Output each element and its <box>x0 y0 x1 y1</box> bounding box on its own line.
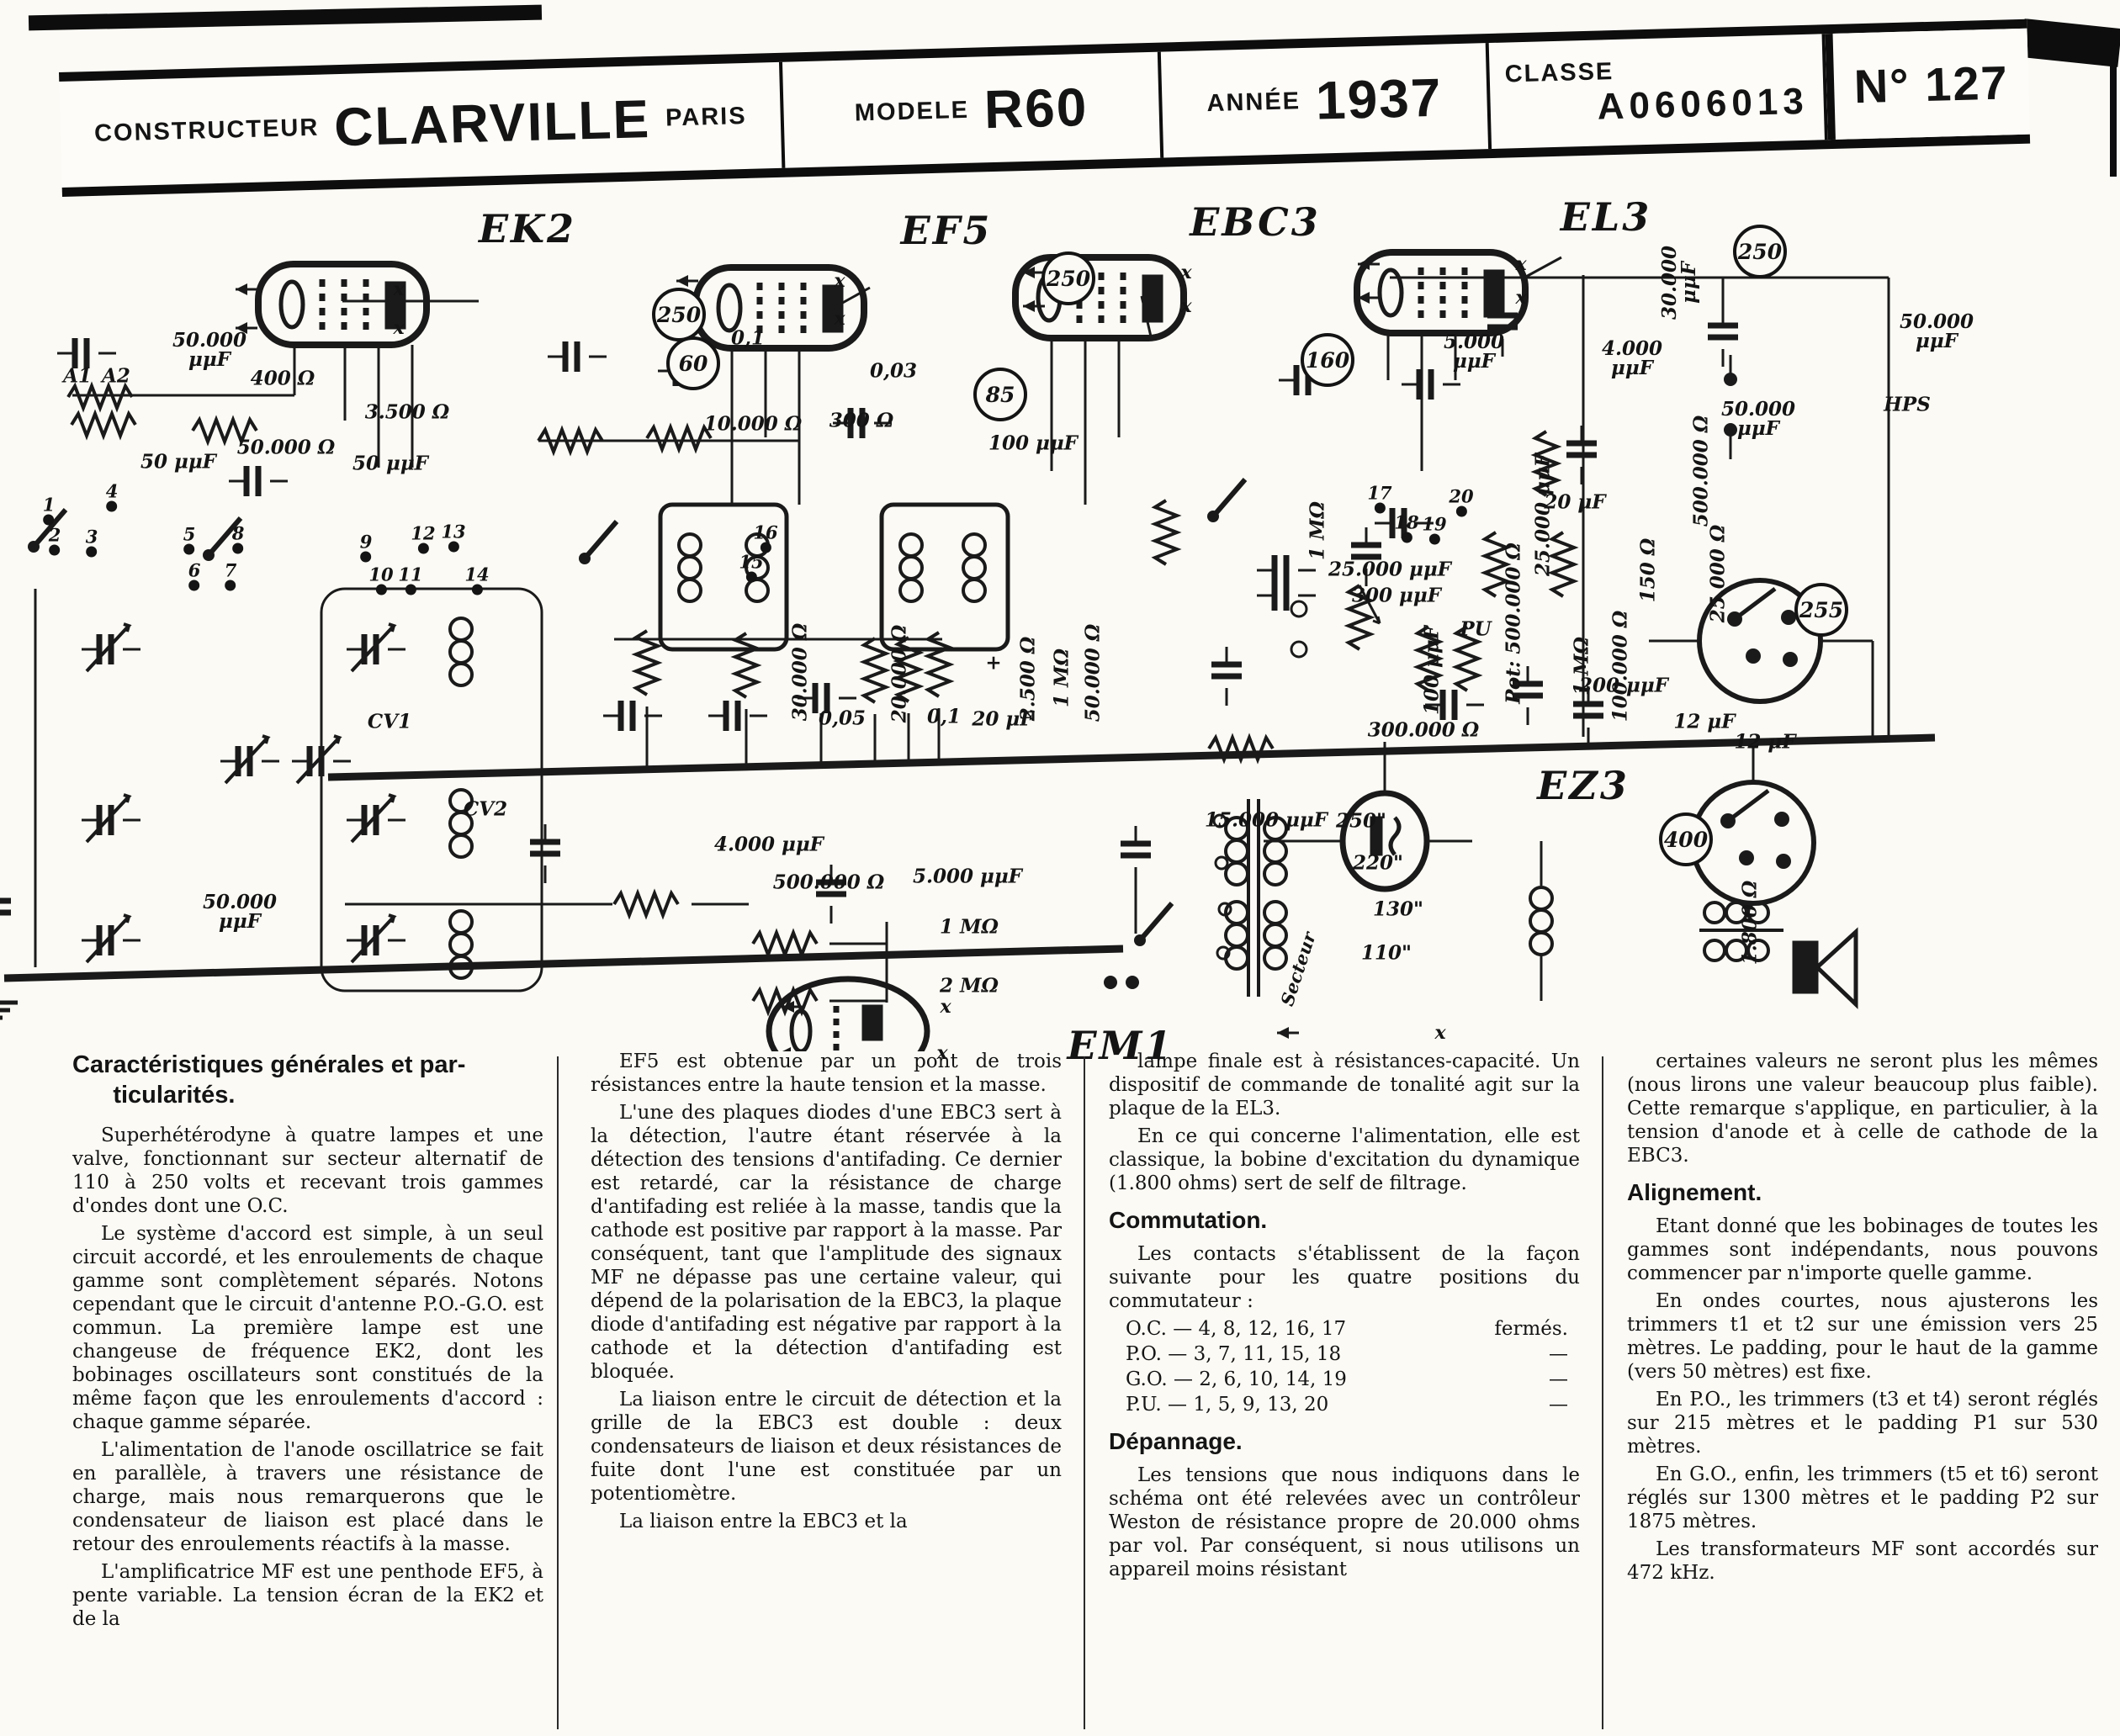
schematic-label: 300 Ω <box>829 411 894 431</box>
schematic-label: 400 Ω <box>251 369 315 389</box>
voltage-circle: 160 <box>1301 333 1354 387</box>
commutation-row-contacts: G.O. — 2, 6, 10, 14, 19 <box>1126 1368 1347 1391</box>
column-divider-2 <box>1084 1056 1085 1729</box>
header-cell-numero: N° 127 <box>1826 29 2030 140</box>
schematic-label: 3.500 Ω <box>365 403 450 422</box>
schematic-label: x <box>834 272 845 290</box>
schematic-label: 15.000 μμF <box>1205 811 1328 830</box>
schematic-label: 50.000 μμF <box>1900 312 1974 351</box>
header-strip: CONSTRUCTEUR CLARVILLE PARIS MODELE R60 … <box>59 19 2030 197</box>
schematic-label: 1 MΩ <box>1308 501 1328 560</box>
switch-contact-13: 13 <box>441 521 465 542</box>
schematic-label: 10.000 Ω <box>704 415 803 434</box>
circuit-schematic: EK2EF5EBC3EL3EZ3EM1250602508516025025540… <box>0 177 2120 1051</box>
commutation-row: P.U. — 1, 5, 9, 13, 20— <box>1109 1393 1580 1416</box>
service-sheet-page: CONSTRUCTEUR CLARVILLE PARIS MODELE R60 … <box>0 0 2120 1736</box>
modele-label: MODELE <box>854 96 969 127</box>
header-cell-constructeur: CONSTRUCTEUR CLARVILLE PARIS <box>59 62 785 188</box>
schematic-label: x <box>834 310 845 328</box>
constructeur-suffix: PARIS <box>665 102 747 132</box>
switch-contact-3: 3 <box>86 527 98 548</box>
switch-contact-19: 19 <box>1422 514 1446 535</box>
schematic-label: x <box>393 280 404 299</box>
schematic-label: 300 μμF <box>1352 586 1441 606</box>
schematic-label: x <box>1180 297 1191 315</box>
annee-label: ANNÉE <box>1206 87 1301 118</box>
switch-contact-14: 14 <box>464 564 489 585</box>
article-paragraph: certaines valeurs ne seront plus les mêm… <box>1627 1050 2098 1167</box>
schematic-label: 130" <box>1373 900 1423 919</box>
article-paragraph: Le système d'accord est simple, à un seu… <box>72 1222 543 1434</box>
switch-contact-11: 11 <box>398 564 422 585</box>
schematic-label: 50 μμF <box>140 453 216 472</box>
schematic-label: CV1 <box>368 712 411 732</box>
voltage-circle: 250 <box>652 288 706 341</box>
constructeur-value: CLARVILLE <box>333 87 651 158</box>
commutation-row: P.O. — 3, 7, 11, 15, 18— <box>1109 1342 1580 1366</box>
schematic-label: A1 <box>63 367 92 386</box>
schematic-label: 100.000 Ω <box>1611 611 1630 722</box>
schematic-label: 1 MΩ <box>940 918 999 937</box>
schematic-label: + <box>985 654 1001 673</box>
schematic-label: 12 μF <box>1673 712 1735 732</box>
annee-value: 1937 <box>1315 66 1443 132</box>
switch-contact-9: 9 <box>360 532 373 553</box>
voltage-circle: 85 <box>973 368 1027 421</box>
schematic-label: CV2 <box>464 800 507 819</box>
switch-contact-5: 5 <box>183 524 196 545</box>
schematic-label: x <box>1180 263 1191 282</box>
article-paragraph: En G.O., enfin, les trimmers (t5 et t6) … <box>1627 1463 2098 1533</box>
switch-contact-1: 1 <box>43 495 56 516</box>
voltage-circle: 60 <box>666 336 720 390</box>
article-subheading: Dépannage. <box>1109 1428 1580 1455</box>
schematic-label: 4.000 μμF <box>714 835 824 855</box>
tube-label-ek2: EK2 <box>479 206 576 251</box>
voltage-circle: 400 <box>1659 812 1713 866</box>
schematic-label: 5.000 μμF <box>1444 332 1504 371</box>
schematic-label: 50.000 Ω <box>1084 624 1103 722</box>
schematic-label: 0,1 <box>731 329 765 348</box>
article-paragraph: L'amplificatrice MF est une penthode EF5… <box>72 1560 543 1631</box>
header-cell-modele: MODELE R60 <box>782 52 1163 168</box>
schematic-label: 25.000 Ω <box>1709 525 1728 623</box>
schematic-label: 0,05 <box>819 709 866 728</box>
switch-contact-10: 10 <box>368 564 393 585</box>
article-column-4: certaines valeurs ne seront plus les mêm… <box>1627 1050 2098 1733</box>
schematic-label: 0,03 <box>870 362 917 381</box>
switch-contact-6: 6 <box>188 560 201 581</box>
commutation-row-contacts: O.C. — 4, 8, 12, 16, 17 <box>1126 1317 1346 1341</box>
article-paragraph: Les contacts s'établissent de la façon s… <box>1109 1242 1580 1313</box>
switch-contact-4: 4 <box>106 481 119 502</box>
scan-mark-right-edge <box>2110 50 2117 177</box>
schematic-label: x <box>940 998 951 1016</box>
commutation-row: O.C. — 4, 8, 12, 16, 17fermés. <box>1109 1317 1580 1341</box>
article-paragraph: L'alimentation de l'anode oscillatrice s… <box>72 1438 543 1556</box>
article-column-2: EF5 est obtenue par un pont de trois rés… <box>591 1050 1062 1733</box>
voltage-circle: 255 <box>1794 583 1848 637</box>
schematic-label: HPS <box>1884 395 1931 415</box>
article-paragraph: Etant donné que les bobinages de toutes … <box>1627 1215 2098 1285</box>
switch-contact-12: 12 <box>411 523 435 544</box>
schematic-label: 500.000 Ω <box>773 873 885 892</box>
article-paragraph: L'une des plaques diodes d'une EBC3 sert… <box>591 1101 1062 1384</box>
switch-contact-7: 7 <box>225 560 237 581</box>
classe-value: A0606013 <box>1597 80 1809 128</box>
schematic-label: 100 μμF <box>1423 626 1442 715</box>
schematic-label: 50.000 μμF <box>1721 400 1795 438</box>
schematic-label: 300.000 Ω <box>1368 721 1480 740</box>
schematic-label: 30.000 μμF <box>1660 246 1699 320</box>
schematic-label: 4.000 μμF <box>1602 339 1662 378</box>
column-divider-1 <box>557 1056 559 1729</box>
schematic-label: x <box>1515 255 1526 273</box>
schematic-label: 50.000 μμF <box>203 892 277 931</box>
article-paragraph: La liaison entre le circuit de détection… <box>591 1388 1062 1506</box>
commutation-row-status: — <box>1549 1393 1580 1416</box>
schematic-label: 25.000 μμF <box>1328 560 1451 580</box>
voltage-circle: 250 <box>1733 225 1787 278</box>
schematic-label: 50 μμF <box>352 454 428 474</box>
schematic-label: x <box>1515 288 1526 307</box>
article-subheading: Alignement. <box>1627 1179 2098 1206</box>
scan-mark-top-left <box>29 5 542 31</box>
tube-label-ez3: EZ3 <box>1537 763 1630 808</box>
header-cell-classe: CLASSE A0606013 <box>1489 34 1828 149</box>
article-paragraph: En P.O., les trimmers (t3 et t4) seront … <box>1627 1388 2098 1458</box>
schematic-label: 110" <box>1361 944 1412 963</box>
article-subheading: Commutation. <box>1109 1207 1580 1234</box>
article-paragraph: En ce qui concerne l'alimentation, elle … <box>1109 1125 1580 1195</box>
schematic-label: 5.000 μμF <box>913 867 1022 887</box>
schematic-label: 25.000 μμF <box>1534 453 1553 576</box>
schematic-label: x <box>1434 1024 1445 1042</box>
classe-label: CLASSE <box>1504 58 1614 88</box>
commutation-row: G.O. — 2, 6, 10, 14, 19— <box>1109 1368 1580 1391</box>
switch-contact-17: 17 <box>1367 483 1391 504</box>
switch-contact-8: 8 <box>232 523 245 544</box>
article-paragraph: Superhétérodyne à quatre lampes et une v… <box>72 1124 543 1218</box>
schematic-label: A2 <box>102 367 130 386</box>
switch-contact-2: 2 <box>49 525 61 546</box>
schematic-label: 2 MΩ <box>940 977 999 996</box>
commutation-row-status: — <box>1549 1368 1580 1391</box>
article-paragraph: La liaison entre la EBC3 et la <box>591 1510 1062 1533</box>
commutation-row-status: fermés. <box>1494 1317 1580 1341</box>
article-paragraph: EF5 est obtenue par un pont de trois rés… <box>591 1050 1062 1097</box>
schematic-label: 2.500 Ω <box>1019 637 1038 722</box>
switch-contact-20: 20 <box>1449 486 1473 507</box>
scan-mark-top-right <box>2021 19 2120 67</box>
switch-contact-16: 16 <box>753 522 777 543</box>
commutation-row-contacts: P.U. — 1, 5, 9, 13, 20 <box>1126 1393 1328 1416</box>
article-paragraph: Les tensions que nous indiquons dans le … <box>1109 1463 1580 1581</box>
schematic-label: 50.000 Ω <box>237 438 336 458</box>
schematic-label: 20.000 Ω <box>890 625 909 723</box>
schematic-label: 200 μμF <box>1579 676 1668 696</box>
article-paragraph: Les transformateurs MF sont accordés sur… <box>1627 1538 2098 1585</box>
tube-label-ebc3: EBC3 <box>1190 199 1320 245</box>
schematic-label: 150 Ω <box>1639 538 1658 603</box>
column-divider-3 <box>1602 1056 1603 1729</box>
voltage-circle: 250 <box>1041 251 1095 305</box>
schematic-label: 100 μμF <box>988 434 1078 453</box>
article-column-3: lampe finale est à résistances-capacité.… <box>1109 1050 1580 1733</box>
schematic-label: 250" <box>1336 812 1386 831</box>
schematic-label: Pot: 500.000 Ω <box>1504 542 1524 704</box>
article-paragraph: En ondes courtes, nous ajusterons les tr… <box>1627 1289 2098 1384</box>
schematic-label: 12 μF <box>1734 733 1795 752</box>
schematic-label: 1.800 Ω <box>1741 881 1760 966</box>
switch-contact-15: 15 <box>739 552 763 573</box>
schematic-label: 500.000 Ω <box>1692 415 1711 527</box>
commutation-row-status: — <box>1549 1342 1580 1366</box>
schematic-label: 1 MΩ <box>1052 648 1072 707</box>
header-cell-annee: ANNÉE 1937 <box>1161 43 1492 158</box>
schematic-label: 0,1 <box>927 707 961 727</box>
tube-label-ef5: EF5 <box>901 208 993 253</box>
constructeur-label: CONSTRUCTEUR <box>94 114 320 147</box>
article-paragraph: lampe finale est à résistances-capacité.… <box>1109 1050 1580 1120</box>
schematic-label: 30.000 Ω <box>791 623 810 722</box>
schematic-label: x <box>393 319 404 337</box>
modele-value: R60 <box>983 76 1089 140</box>
schematic-label: 220" <box>1353 854 1403 873</box>
commutation-row-contacts: P.O. — 3, 7, 11, 15, 18 <box>1126 1342 1341 1366</box>
article-heading: Caractéristiques générales et par- ticul… <box>72 1050 543 1110</box>
schematic-label: 50.000 μμF <box>172 331 246 369</box>
numero-value: N° 127 <box>1853 55 2010 114</box>
article-column-1: Caractéristiques générales et par- ticul… <box>72 1050 543 1733</box>
switch-contact-18: 18 <box>1394 512 1418 533</box>
schematic-label: PU <box>1460 620 1491 639</box>
schematic-label: 20 μF <box>1544 493 1605 512</box>
tube-label-el3: EL3 <box>1561 194 1651 240</box>
